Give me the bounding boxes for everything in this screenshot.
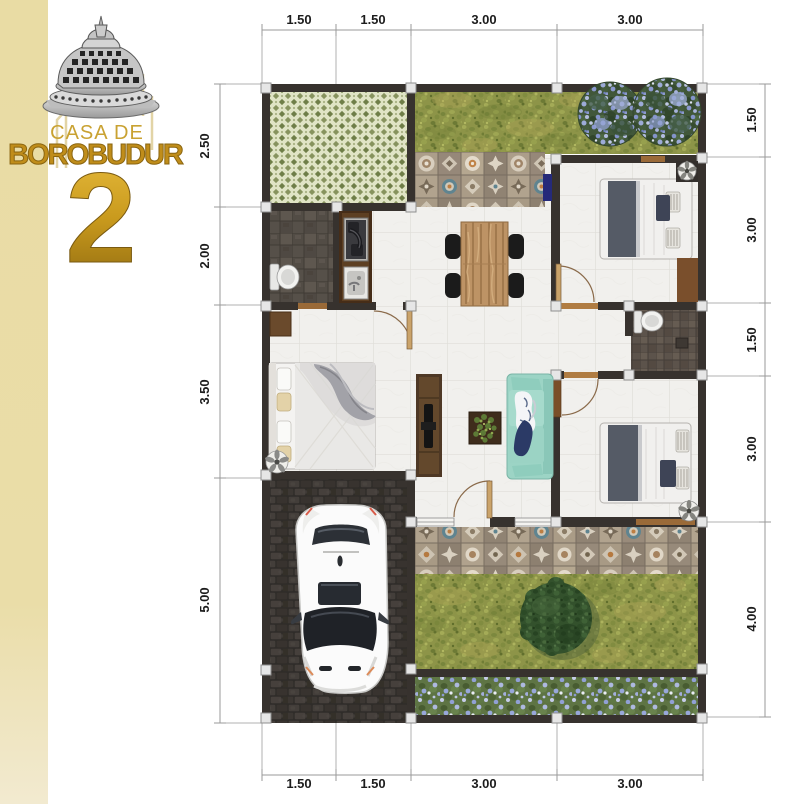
svg-text:2.00: 2.00	[197, 243, 212, 268]
svg-text:3.00: 3.00	[471, 12, 496, 27]
svg-text:3.50: 3.50	[197, 379, 212, 404]
svg-text:4.00: 4.00	[744, 606, 759, 631]
svg-text:3.00: 3.00	[744, 217, 759, 242]
svg-text:2: 2	[65, 147, 136, 290]
svg-text:5.00: 5.00	[197, 587, 212, 612]
svg-text:1.50: 1.50	[360, 776, 385, 791]
svg-text:3.00: 3.00	[617, 12, 642, 27]
svg-text:1.50: 1.50	[360, 12, 385, 27]
svg-text:1.50: 1.50	[286, 12, 311, 27]
svg-text:3.00: 3.00	[471, 776, 496, 791]
svg-text:2.50: 2.50	[197, 133, 212, 158]
svg-text:3.00: 3.00	[744, 436, 759, 461]
svg-text:3.00: 3.00	[617, 776, 642, 791]
svg-text:1.50: 1.50	[286, 776, 311, 791]
svg-text:1.50: 1.50	[744, 107, 759, 132]
svg-text:1.50: 1.50	[744, 327, 759, 352]
